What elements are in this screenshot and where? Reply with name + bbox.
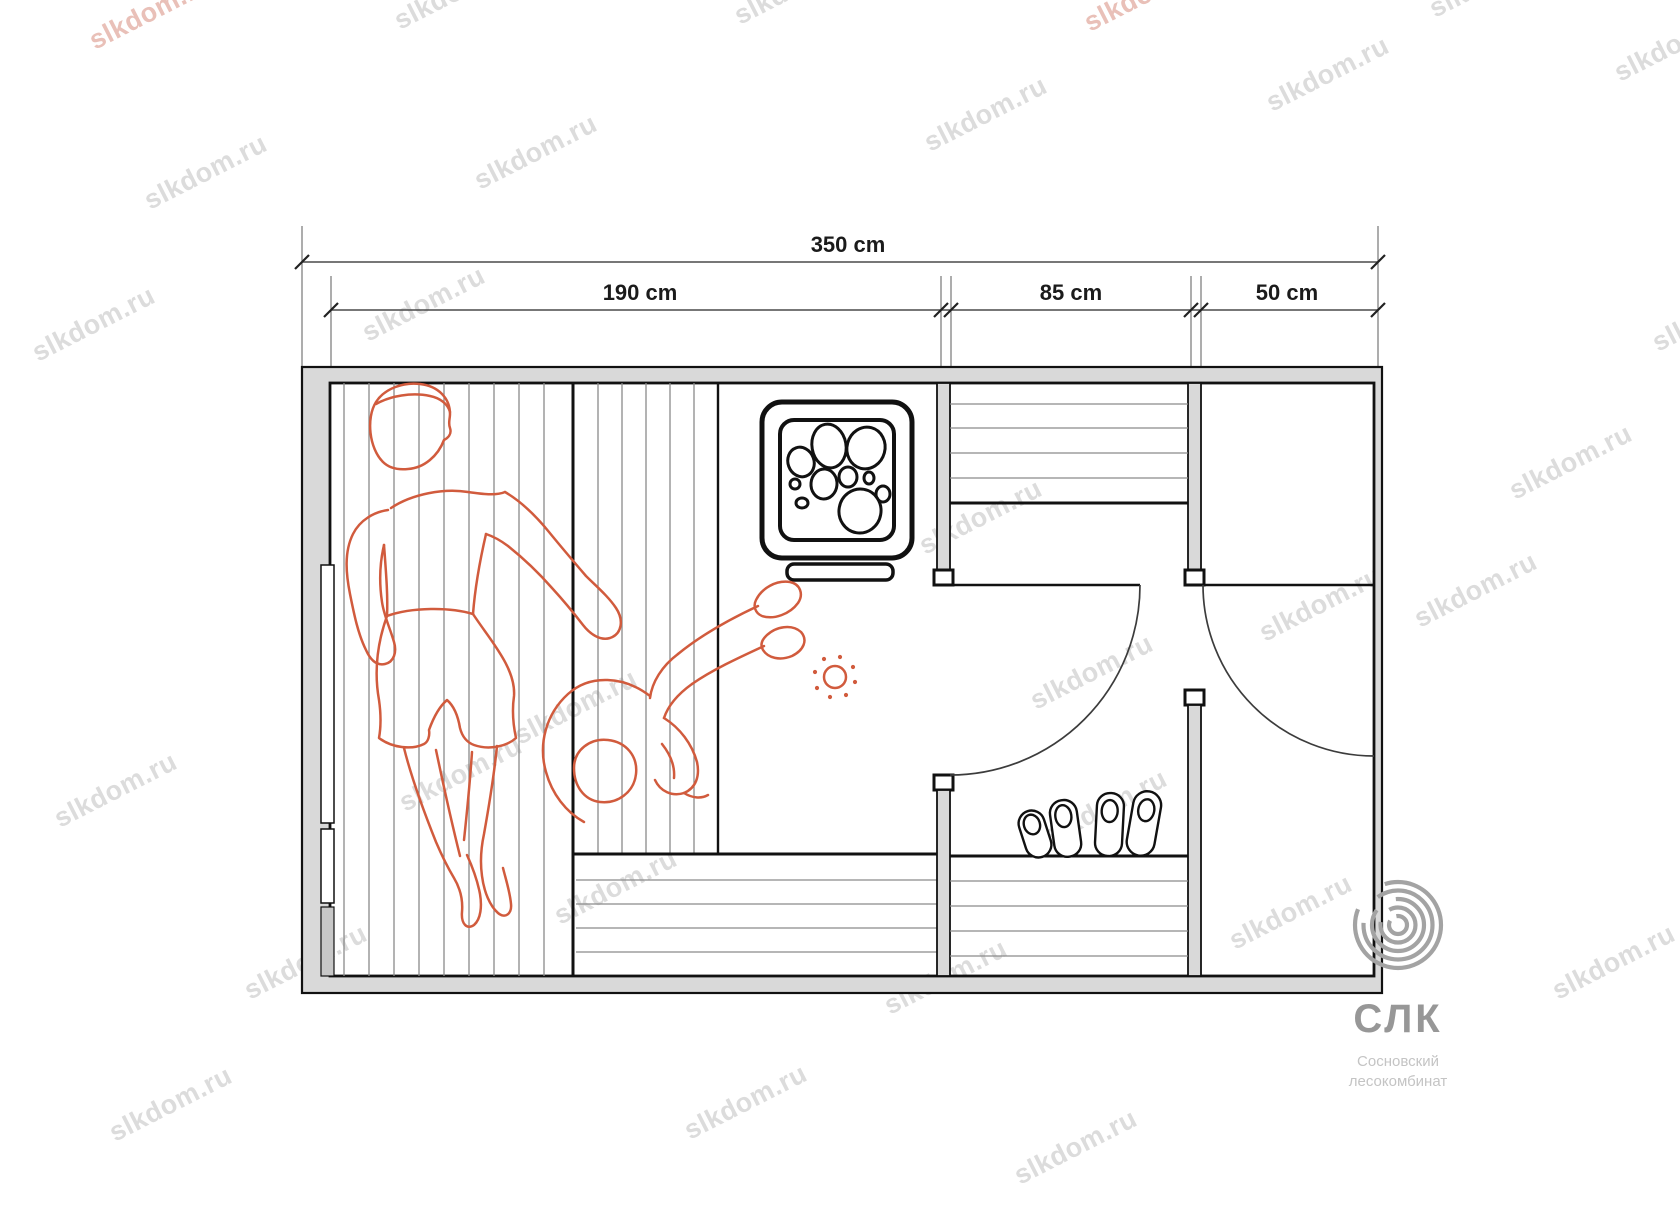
watermark: slkdom.ru <box>1254 560 1387 647</box>
logo-rings-icon <box>1355 882 1441 968</box>
watermark: slkdom.ru <box>1609 0 1680 87</box>
partition-sauna-washroom <box>934 383 953 976</box>
watermark: slkdom.ru <box>1424 0 1557 23</box>
watermark: slkdom.ru <box>1647 270 1680 357</box>
watermark: slkdom.ru <box>1009 1103 1142 1190</box>
watermark: slkdom.ru <box>49 746 182 833</box>
stove-front-bar <box>787 564 893 580</box>
left-wall-window <box>321 565 334 976</box>
watermark: slkdom.ru <box>1547 918 1680 1005</box>
watermark: slkdom.ru <box>84 0 217 55</box>
stove <box>762 402 912 580</box>
watermark: slkdom.ru <box>1224 868 1357 955</box>
watermark: slkdom.ru <box>139 128 272 215</box>
watermark: slkdom.ru <box>27 280 160 367</box>
watermark: slkdom.ru <box>1261 30 1394 117</box>
lamp-icon <box>813 655 857 699</box>
logo-subtitle-line2: лесокомбинат <box>1349 1073 1448 1090</box>
person-figure-standing <box>347 384 621 927</box>
watermark: slkdom.ru <box>679 1058 812 1145</box>
watermark: slkdom.ru <box>729 0 862 30</box>
watermark: slkdom.ru <box>357 260 490 347</box>
dimension-washroom-label: 85 cm <box>1040 280 1102 305</box>
washroom-bench-top <box>950 404 1188 503</box>
dimension-total-label: 350 cm <box>811 232 886 257</box>
watermark: slkdom.ru <box>104 1060 237 1147</box>
partition-washroom-entrance <box>1185 383 1204 976</box>
watermark: slkdom.ru <box>1504 418 1637 505</box>
dimension-sauna-label: 190 cm <box>603 280 678 305</box>
watermark: slkdom.ru <box>389 0 522 35</box>
watermark: slkdom.ru <box>1409 546 1542 633</box>
dimension-entrance-label: 50 cm <box>1256 280 1318 305</box>
watermark: slkdom.ru <box>1025 628 1158 715</box>
watermark: slkdom.ru <box>469 108 602 195</box>
logo-subtitle-line1: Сосновский <box>1357 1053 1439 1070</box>
watermark: slkdom.ru <box>1079 0 1212 37</box>
floor-plan-canvas: slkdom.ru slkdom.ru slkdom.ru slkdom.ru … <box>0 0 1680 1225</box>
watermark: slkdom.ru <box>919 70 1052 157</box>
watermark: slkdom.ru <box>914 473 1047 560</box>
logo-abbr: СЛК <box>1353 997 1442 1041</box>
watermark: slkdom.ru <box>549 843 682 930</box>
